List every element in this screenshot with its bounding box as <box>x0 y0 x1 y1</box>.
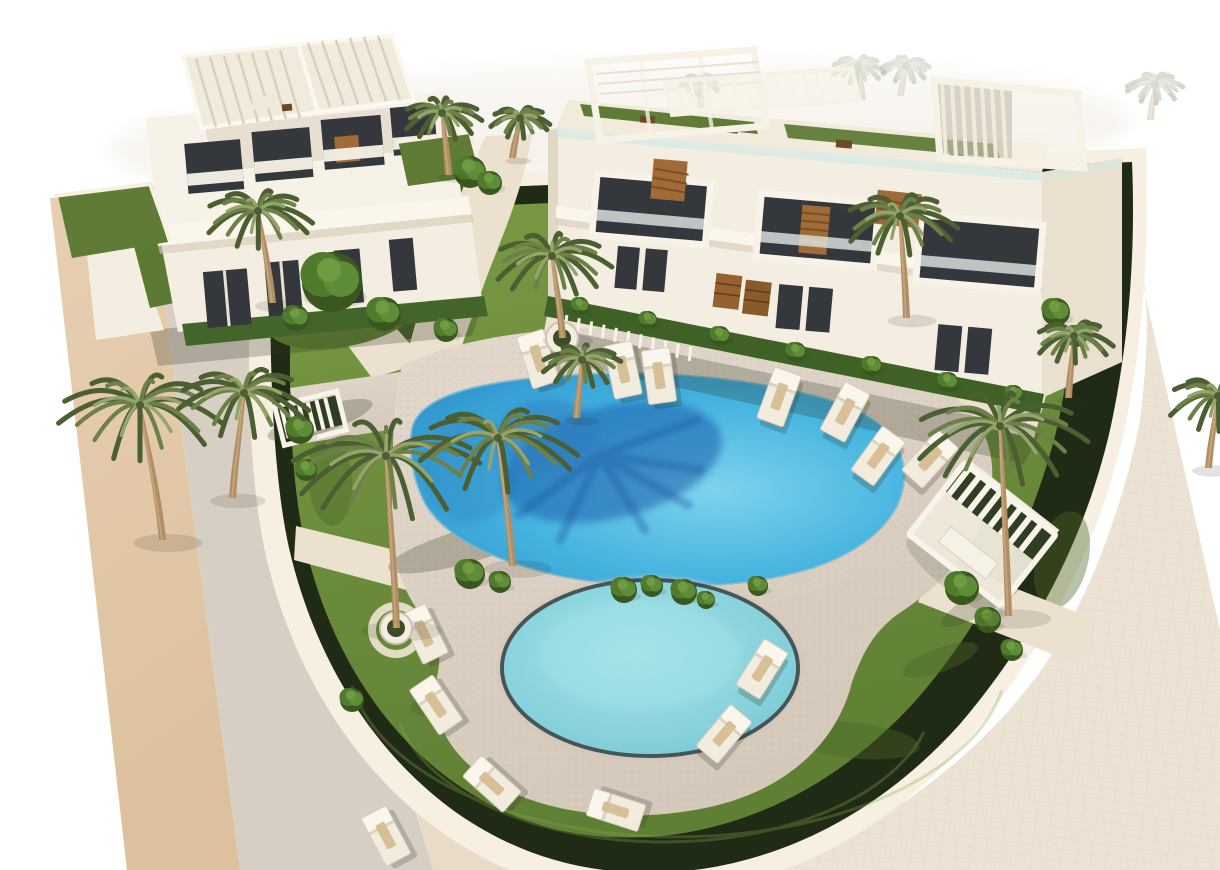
aerial-render-svg <box>0 0 1220 870</box>
garden-gate <box>706 266 779 320</box>
balcony-1 <box>592 173 711 245</box>
side-face <box>1042 158 1122 398</box>
render-canvas: Aerial 3D rendering of a new-build resid… <box>0 0 1220 870</box>
roof-pergola-tower-right <box>934 80 1084 168</box>
